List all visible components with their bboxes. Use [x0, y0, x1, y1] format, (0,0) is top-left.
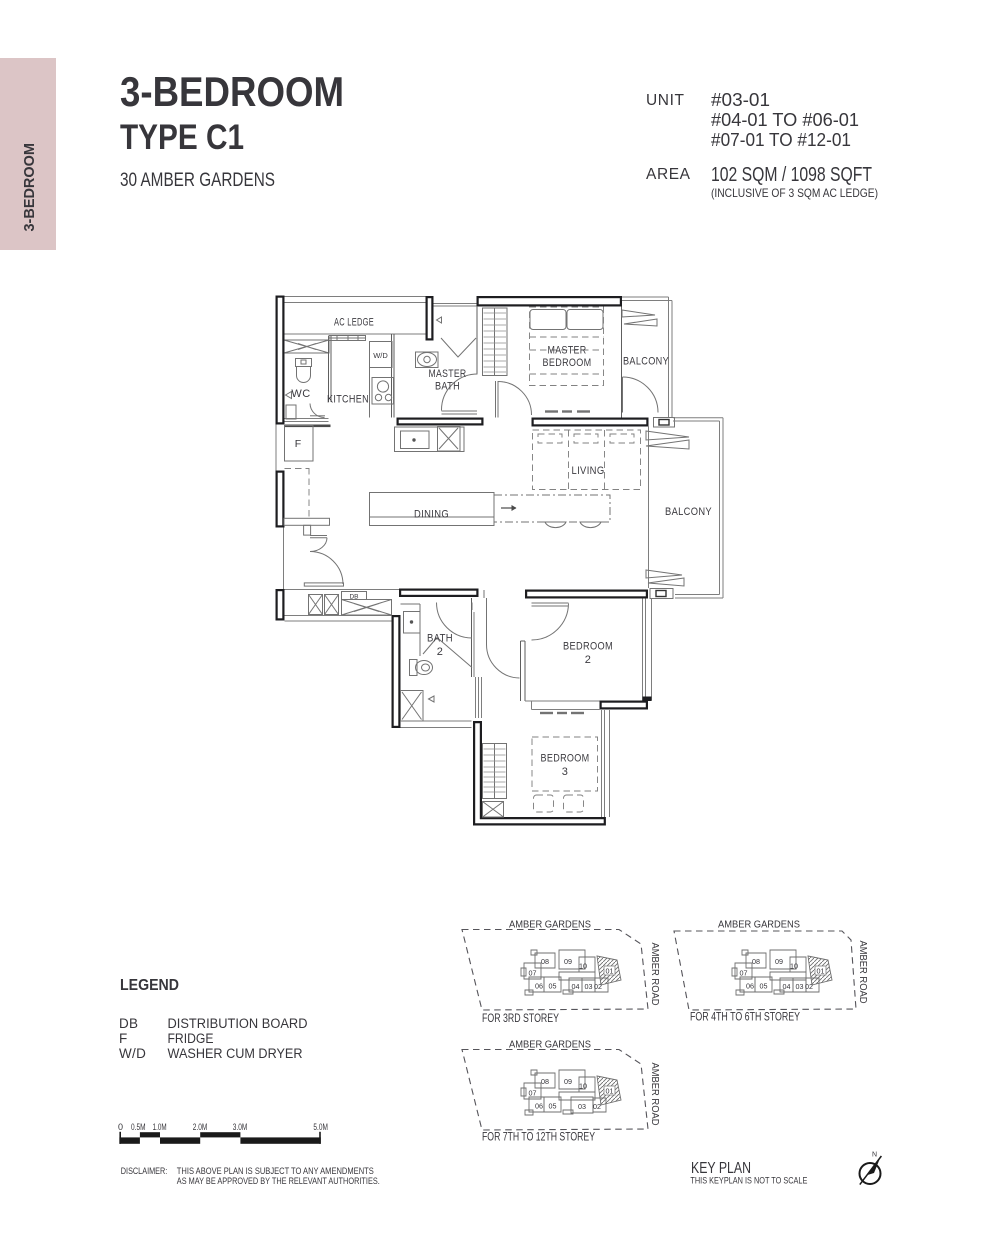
- svg-text:BALCONY: BALCONY: [623, 356, 669, 368]
- svg-text:AC LEDGE: AC LEDGE: [334, 317, 374, 329]
- svg-text:2: 2: [437, 646, 444, 658]
- svg-text:FRIDGE: FRIDGE: [168, 1031, 214, 1046]
- svg-text:1.0M: 1.0M: [153, 1122, 167, 1132]
- svg-text:BEDROOM: BEDROOM: [543, 357, 592, 369]
- svg-text:FOR 7TH TO 12TH STOREY: FOR 7TH TO 12TH STOREY: [482, 1130, 595, 1144]
- svg-text:F: F: [119, 1031, 128, 1046]
- svg-text:W/D: W/D: [119, 1046, 146, 1061]
- svg-text:F: F: [295, 438, 301, 450]
- svg-text:FOR 4TH TO 6TH STOREY: FOR 4TH TO 6TH STOREY: [690, 1012, 800, 1024]
- svg-text:AMBER GARDENS: AMBER GARDENS: [509, 919, 591, 931]
- svg-text:MASTER: MASTER: [548, 345, 587, 357]
- svg-text:DISTRIBUTION BOARD: DISTRIBUTION BOARD: [168, 1016, 308, 1031]
- svg-text:BALCONY: BALCONY: [665, 506, 712, 518]
- svg-text:3-BEDROOM: 3-BEDROOM: [120, 68, 344, 115]
- svg-text:BATH: BATH: [435, 381, 460, 393]
- svg-text:AS MAY BE APPROVED BY THE RELE: AS MAY BE APPROVED BY THE RELEVANT AUTHO…: [177, 1176, 380, 1187]
- svg-text:LIVING: LIVING: [572, 465, 605, 477]
- svg-text:#04-01 TO #06-01: #04-01 TO #06-01: [711, 109, 859, 130]
- svg-text:5.0M: 5.0M: [313, 1122, 328, 1132]
- svg-text:#03-01: #03-01: [711, 89, 770, 110]
- svg-text:AMBER ROAD: AMBER ROAD: [857, 941, 869, 1004]
- svg-text:0.5M: 0.5M: [131, 1122, 146, 1132]
- svg-text:KITCHEN: KITCHEN: [327, 394, 369, 406]
- svg-text:DINING: DINING: [414, 509, 449, 521]
- svg-text:FOR 3RD STOREY: FOR 3RD STOREY: [482, 1013, 559, 1025]
- svg-text:(INCLUSIVE OF 3 SQM AC LEDGE): (INCLUSIVE OF 3 SQM AC LEDGE): [711, 186, 878, 200]
- svg-text:#07-01 TO #12-01: #07-01 TO #12-01: [711, 129, 851, 150]
- svg-text:KEY PLAN: KEY PLAN: [691, 1160, 751, 1177]
- svg-text:3-BEDROOM: 3-BEDROOM: [22, 143, 38, 232]
- svg-text:3: 3: [562, 766, 569, 778]
- svg-text:AREA: AREA: [646, 166, 691, 183]
- svg-text:UNIT: UNIT: [646, 92, 685, 109]
- svg-text:AMBER GARDENS: AMBER GARDENS: [509, 1039, 591, 1051]
- svg-text:BEDROOM: BEDROOM: [563, 641, 613, 653]
- svg-text:BATH: BATH: [427, 633, 453, 645]
- svg-text:DISCLAIMER:: DISCLAIMER:: [121, 1166, 168, 1177]
- svg-text:MASTER: MASTER: [429, 368, 467, 380]
- svg-text:0: 0: [118, 1122, 123, 1132]
- svg-text:AMBER ROAD: AMBER ROAD: [649, 943, 661, 1006]
- svg-text:DB: DB: [119, 1016, 138, 1031]
- svg-text:AMBER ROAD: AMBER ROAD: [649, 1063, 661, 1126]
- svg-text:102 SQM / 1098 SQFT: 102 SQM / 1098 SQFT: [711, 164, 872, 186]
- svg-text:N: N: [872, 1152, 877, 1159]
- svg-text:W/D: W/D: [373, 351, 388, 360]
- svg-text:BEDROOM: BEDROOM: [541, 753, 590, 765]
- svg-text:AMBER GARDENS: AMBER GARDENS: [718, 919, 800, 931]
- svg-text:2: 2: [585, 654, 592, 666]
- svg-text:30 AMBER GARDENS: 30 AMBER GARDENS: [120, 170, 275, 191]
- svg-text:2.0M: 2.0M: [193, 1122, 208, 1132]
- svg-text:WC: WC: [291, 388, 310, 400]
- svg-text:LEGEND: LEGEND: [120, 977, 179, 994]
- svg-text:3.0M: 3.0M: [233, 1122, 248, 1132]
- svg-text:WASHER CUM DRYER: WASHER CUM DRYER: [168, 1046, 303, 1061]
- svg-text:THIS KEYPLAN IS NOT TO SCALE: THIS KEYPLAN IS NOT TO SCALE: [690, 1176, 807, 1187]
- svg-text:TYPE C1: TYPE C1: [120, 118, 244, 157]
